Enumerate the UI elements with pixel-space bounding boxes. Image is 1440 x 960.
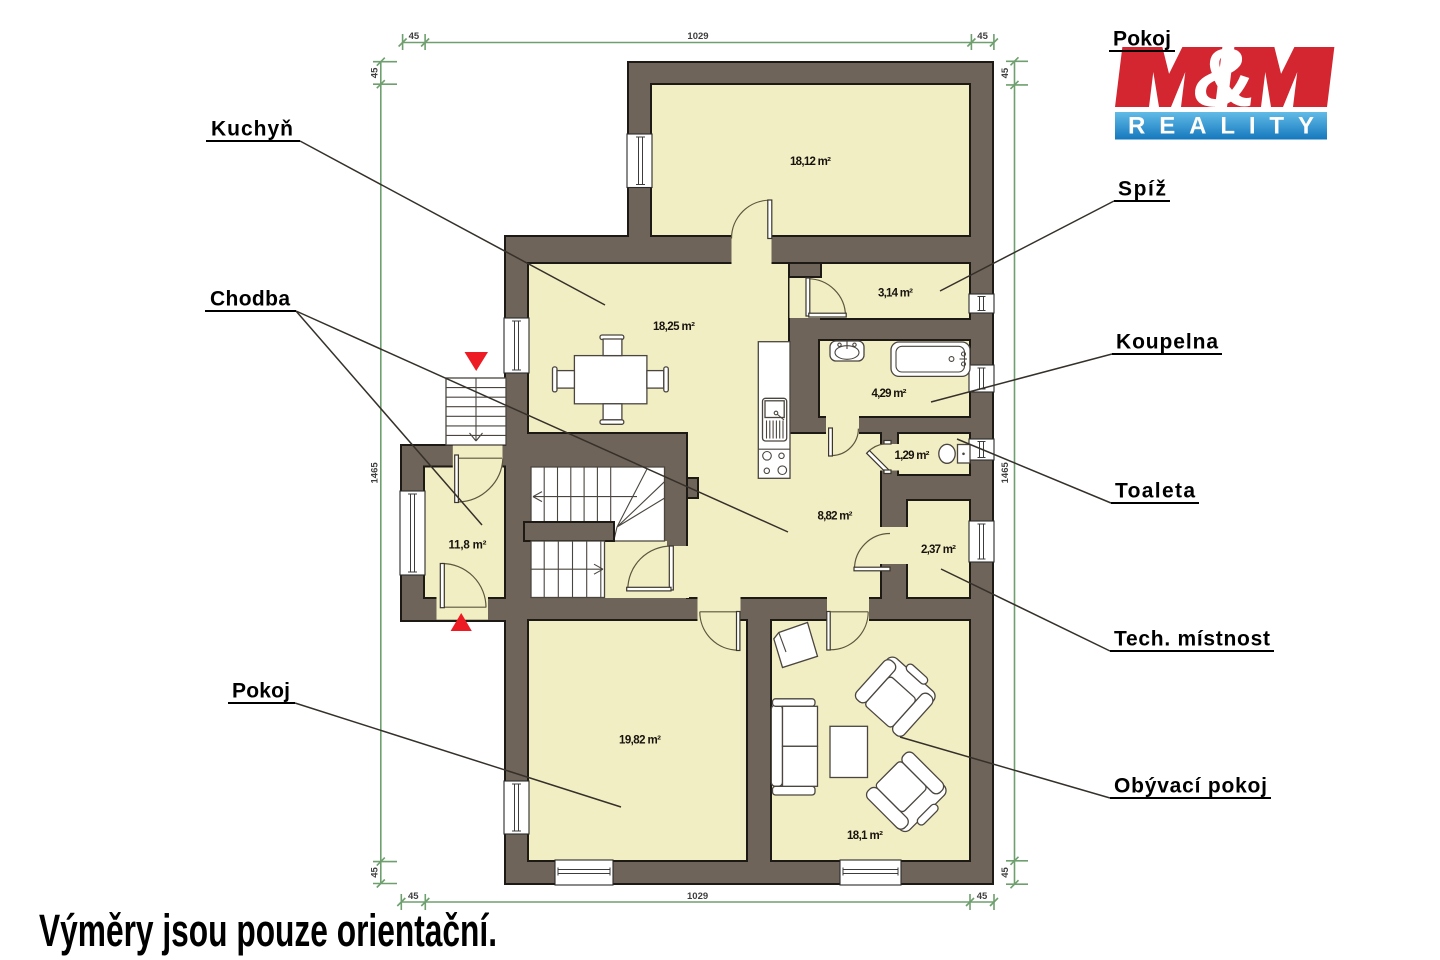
svg-text:Spíž: Spíž [1118,178,1166,201]
svg-text:19,82 m²: 19,82 m² [619,735,661,747]
svg-text:45: 45 [409,31,420,42]
svg-text:18,12 m²: 18,12 m² [790,156,831,168]
svg-text:&: & [1187,32,1262,125]
svg-text:Koupelna: Koupelna [1116,331,1218,354]
svg-text:Obývací pokoj: Obývací pokoj [1114,775,1267,798]
svg-text:1,29 m²: 1,29 m² [895,450,930,462]
svg-text:45: 45 [370,867,381,878]
svg-text:3,14 m²: 3,14 m² [878,288,913,300]
svg-text:1465: 1465 [370,462,381,484]
svg-text:1029: 1029 [687,31,708,42]
svg-text:45: 45 [408,891,419,902]
svg-text:11,8 m²: 11,8 m² [449,540,487,552]
svg-text:1029: 1029 [687,891,708,902]
svg-text:Výměry jsou pouze orientační.: Výměry jsou pouze orientační. [39,905,497,956]
svg-text:45: 45 [370,67,381,78]
svg-text:45: 45 [977,31,988,42]
svg-text:18,1 m²: 18,1 m² [847,830,883,842]
svg-text:4,29 m²: 4,29 m² [872,388,907,400]
svg-text:8,82 m²: 8,82 m² [818,511,853,523]
svg-text:Kuchyň: Kuchyň [211,118,293,141]
svg-text:45: 45 [977,891,988,902]
svg-text:Pokoj: Pokoj [1113,28,1171,51]
svg-text:45: 45 [1000,67,1011,78]
svg-text:Toaleta: Toaleta [1115,480,1195,503]
svg-text:45: 45 [1000,867,1011,878]
svg-text:Chodba: Chodba [210,288,290,311]
svg-text:2,37 m²: 2,37 m² [921,544,956,556]
svg-text:18,25 m²: 18,25 m² [653,321,695,333]
svg-text:1465: 1465 [1000,462,1011,484]
svg-text:Pokoj: Pokoj [232,680,290,703]
svg-text:Tech. místnost: Tech. místnost [1114,628,1270,651]
